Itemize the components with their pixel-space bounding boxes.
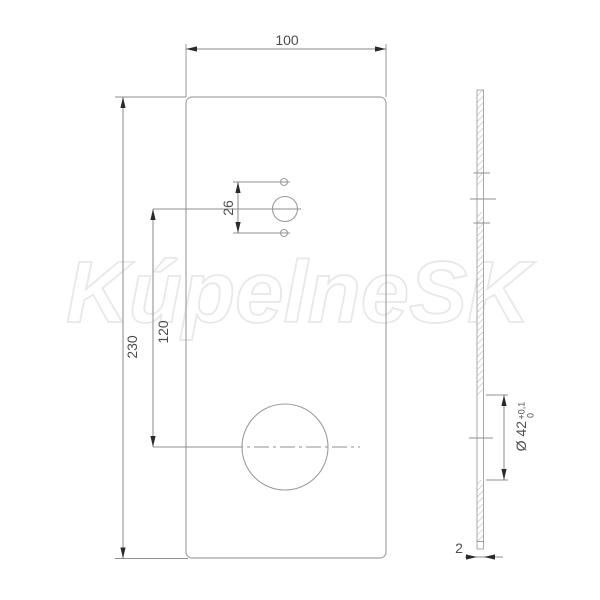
hatch-segment-middle <box>477 212 484 395</box>
diameter-tolerance-lower: 0 <box>526 413 536 418</box>
dim-arrow-top <box>150 209 155 220</box>
technical-drawing-page: KúpelneSK 100 230 <box>0 0 600 600</box>
thickness-dimension-label: 2 <box>455 540 463 556</box>
pin-spacing-dimension-label: 26 <box>220 200 236 216</box>
dim-arrow-top <box>501 395 506 406</box>
width-dimension: 100 <box>186 32 386 97</box>
hole-offset-dimension-label: 120 <box>155 320 171 344</box>
dim-arrow-bottom <box>501 469 506 480</box>
pin-spacing-dimension: 26 <box>220 182 290 233</box>
drawing-svg: KúpelneSK 100 230 <box>0 0 600 600</box>
dim-arrow-bottom <box>150 436 155 447</box>
dim-arrow-left <box>466 554 477 559</box>
hatch-segment-bottom <box>477 480 484 541</box>
dim-arrow-bottom <box>235 222 240 233</box>
watermark-text: KúpelneSK <box>66 244 536 341</box>
diameter-dimension: Ø 42 +0,1 0 <box>486 395 536 480</box>
dim-arrow-right <box>375 46 386 51</box>
dim-arrow-left <box>186 46 197 51</box>
dim-arrow-top <box>235 182 240 193</box>
diameter-dimension-label: Ø 42 <box>513 421 529 452</box>
dim-arrow-bottom <box>120 548 125 559</box>
width-dimension-label: 100 <box>275 32 299 48</box>
dim-arrow-right <box>484 554 495 559</box>
hatch-segment-top <box>477 90 484 186</box>
height-dimension-label: 230 <box>124 335 140 359</box>
dim-arrow-top <box>120 97 125 108</box>
